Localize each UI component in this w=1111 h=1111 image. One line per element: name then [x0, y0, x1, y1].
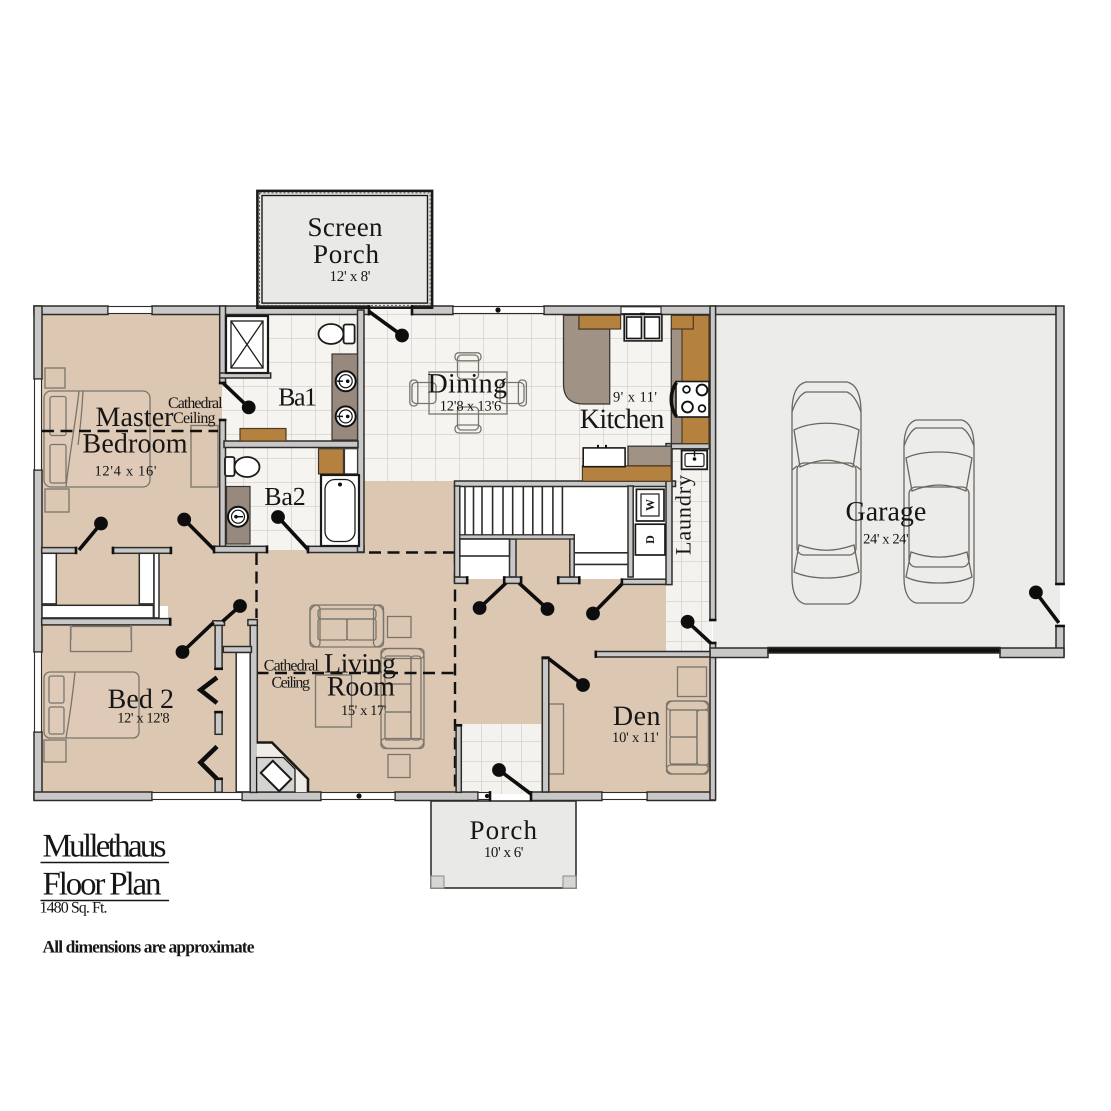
svg-text:Dining: Dining — [427, 369, 507, 400]
svg-text:10' x 11': 10' x 11' — [612, 730, 659, 746]
svg-text:Bedroom: Bedroom — [83, 429, 188, 460]
svg-text:Ceiling: Ceiling — [271, 674, 310, 691]
svg-text:Kitchen: Kitchen — [580, 404, 665, 435]
svg-text:Garage: Garage — [846, 497, 927, 528]
svg-text:Porch: Porch — [313, 239, 380, 269]
svg-text:Den: Den — [613, 701, 661, 732]
svg-text:Cathedral: Cathedral — [264, 657, 320, 674]
svg-text:Ba2: Ba2 — [264, 482, 306, 511]
svg-text:10' x 6': 10' x 6' — [484, 845, 524, 861]
svg-text:All dimensions are approximate: All dimensions are approximate — [43, 937, 255, 957]
svg-text:12' x 8': 12' x 8' — [330, 269, 371, 285]
svg-text:Mullethaus: Mullethaus — [43, 829, 167, 865]
svg-text:1480 Sq. Ft.: 1480 Sq. Ft. — [40, 900, 108, 917]
svg-text:W: W — [643, 499, 657, 511]
svg-text:Porch: Porch — [469, 815, 537, 845]
svg-text:D: D — [643, 535, 657, 544]
svg-text:Floor Plan: Floor Plan — [43, 867, 162, 903]
svg-text:12'8 x 13'6: 12'8 x 13'6 — [440, 399, 502, 415]
svg-text:15' x 17': 15' x 17' — [341, 703, 386, 719]
svg-text:Ceiling: Ceiling — [173, 410, 216, 427]
svg-text:12' x 12'8: 12' x 12'8 — [117, 710, 169, 726]
svg-text:24' x 24': 24' x 24' — [863, 532, 909, 548]
svg-text:12'4 x 16': 12'4 x 16' — [95, 464, 157, 480]
svg-text:Laundry: Laundry — [671, 475, 696, 555]
svg-text:Screen: Screen — [308, 212, 384, 242]
svg-text:Room: Room — [327, 672, 395, 703]
svg-text:Ba1: Ba1 — [278, 383, 317, 412]
